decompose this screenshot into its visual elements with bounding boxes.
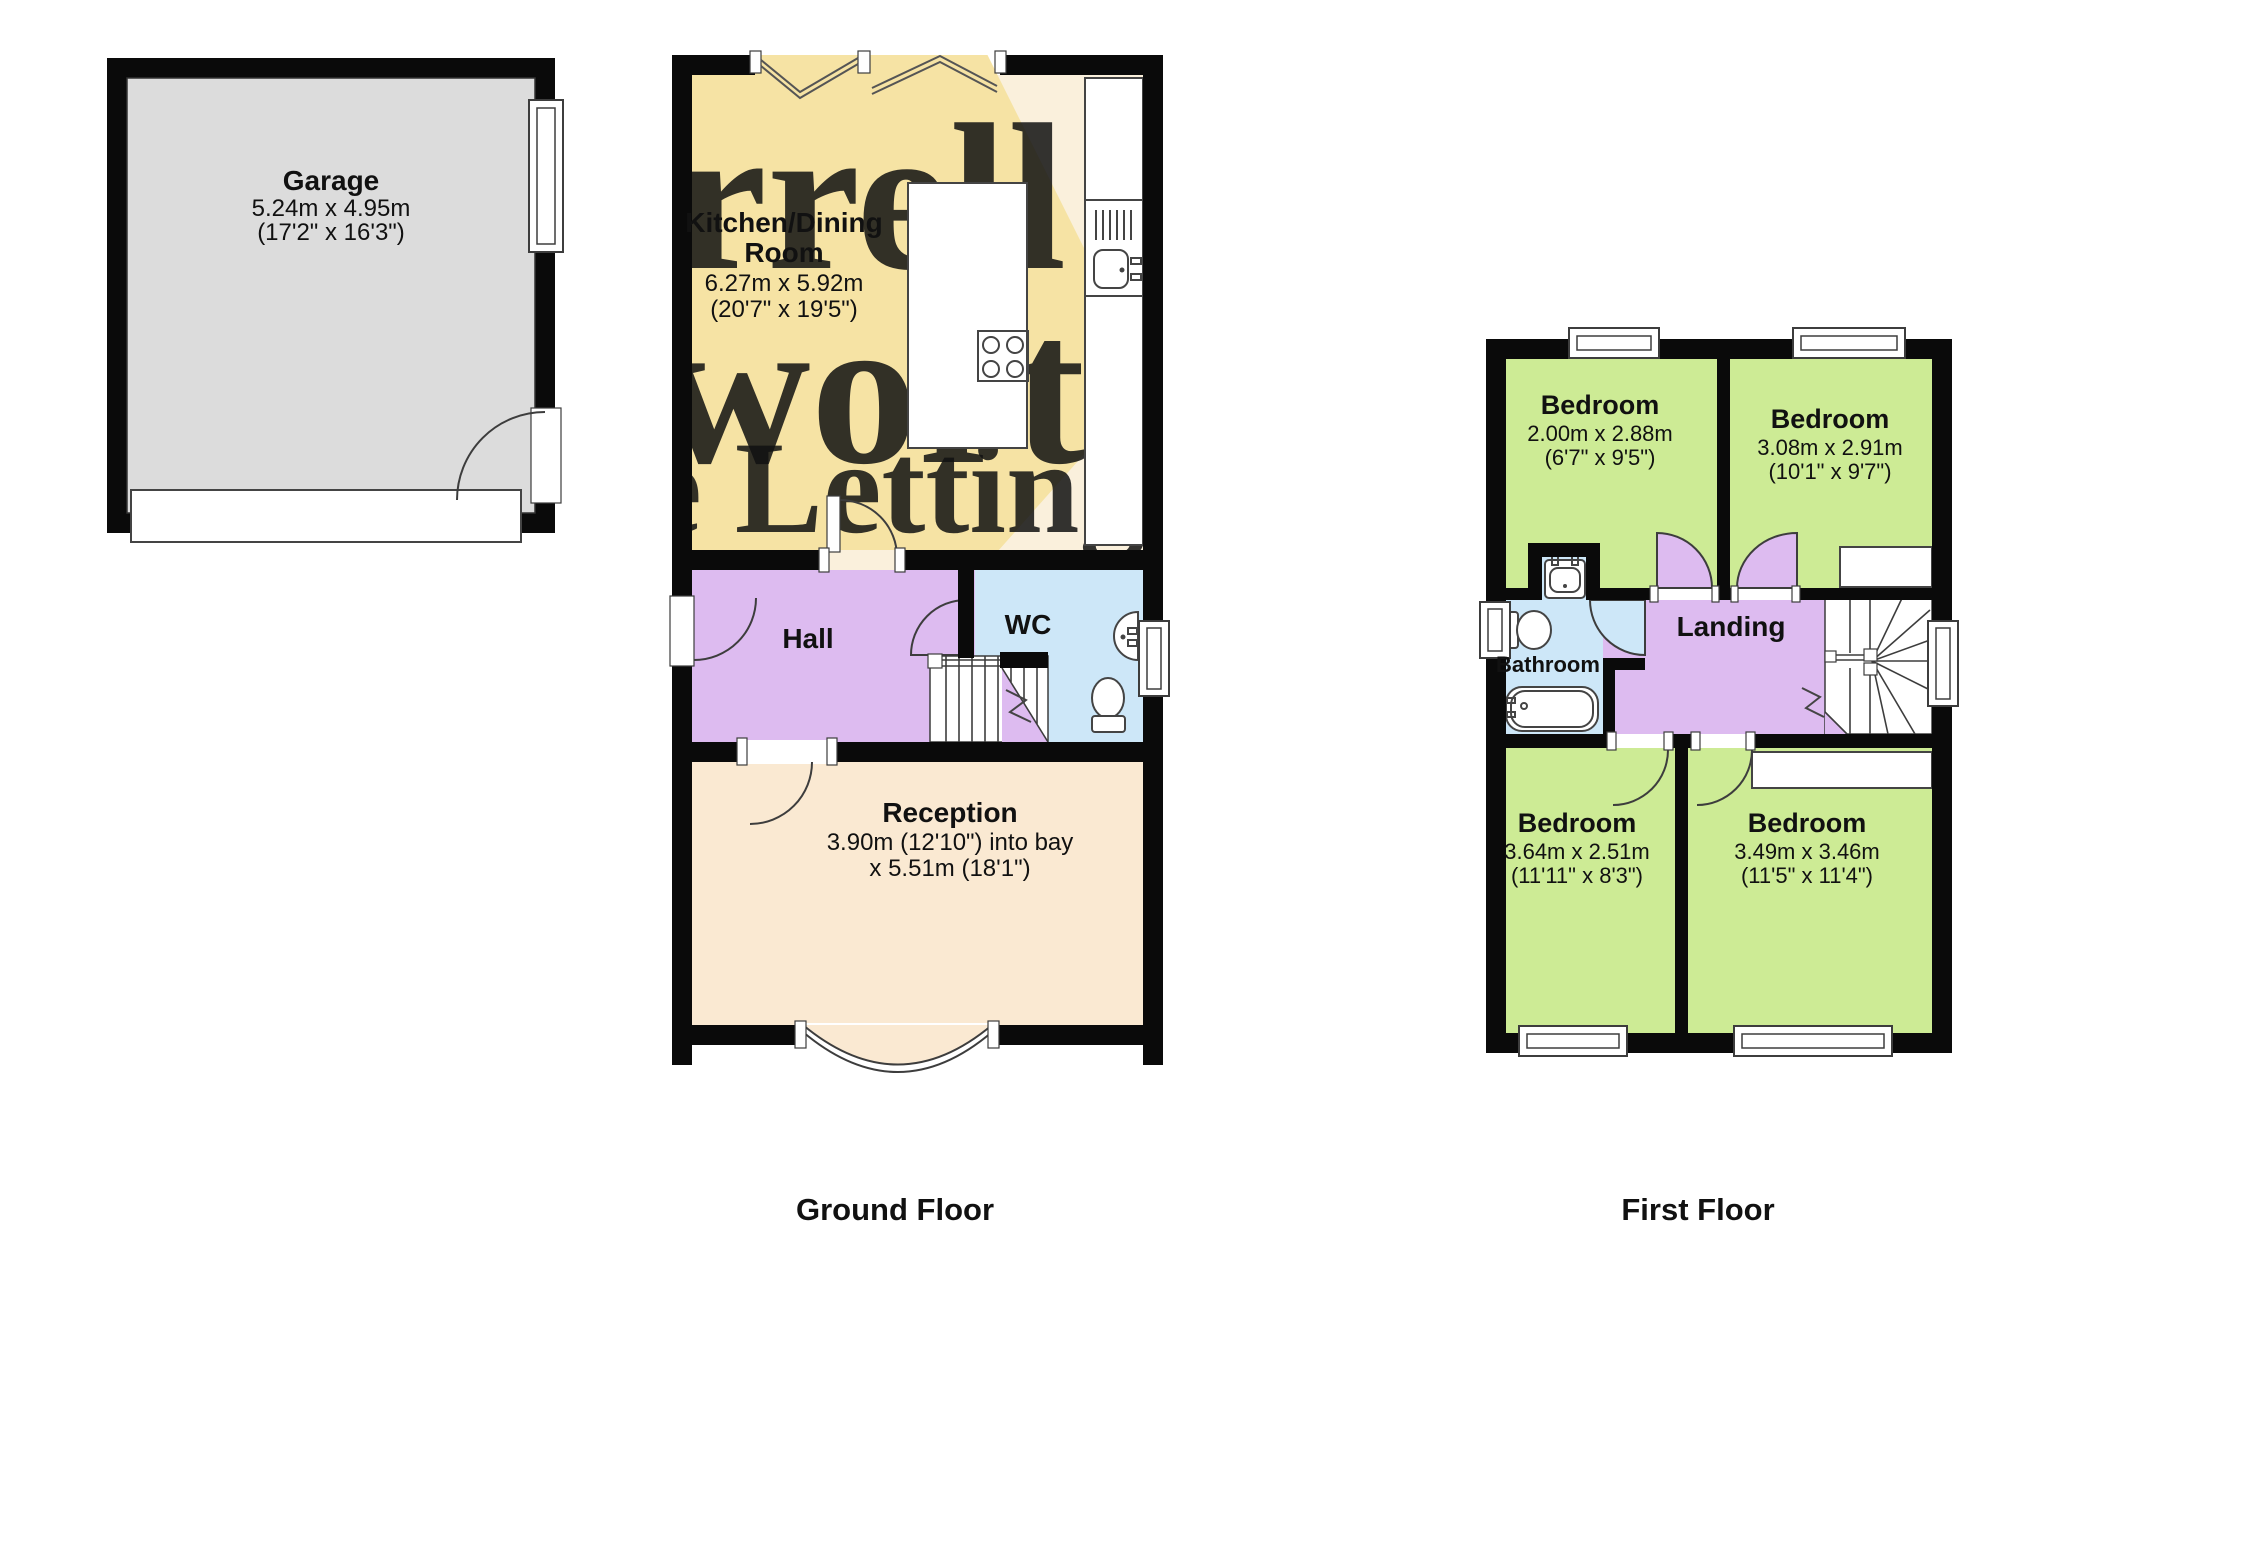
sink-drain	[1120, 268, 1125, 273]
garage-dims-ft: (17'2" x 16'3")	[257, 219, 405, 246]
stairs-first	[1825, 592, 1932, 734]
garage-side-door	[531, 408, 561, 503]
door-jamb	[1731, 586, 1738, 602]
bedroom-tr-dims-ft: (10'1" x 9'7")	[1768, 459, 1891, 484]
garage-dims-m: 5.24m x 4.95m	[252, 195, 411, 222]
newel-post	[1825, 651, 1836, 662]
garage-door-icon	[131, 490, 521, 542]
door-jamb	[988, 1021, 999, 1048]
bedroom-tr-label: Bedroom	[1771, 404, 1890, 434]
wardrobe	[1752, 752, 1932, 788]
bedroom-bottom-left-window-icon	[1519, 1026, 1627, 1056]
bathroom-window-icon	[1480, 602, 1510, 658]
door-jamb	[737, 738, 747, 765]
kitchen-island	[908, 183, 1027, 448]
bathroom-label: Bathroom	[1496, 652, 1600, 677]
reception-dims-2: x 5.51m (18'1")	[869, 855, 1030, 882]
garage-label: Garage	[283, 165, 380, 196]
first-floor-plan: Bedroom 2.00m x 2.88m (6'7" x 9'5") Bedr…	[1480, 328, 1958, 1227]
toilet-cistern-icon	[1092, 716, 1125, 732]
bedroom-bl-dims-ft: (11'11" x 8'3")	[1511, 863, 1643, 888]
bedroom-tl-label: Bedroom	[1541, 390, 1660, 420]
hall-label: Hall	[782, 623, 833, 654]
bedroom-bl-dims-m: 3.64m x 2.51m	[1504, 839, 1650, 864]
kitchen-dims-m: 6.27m x 5.92m	[705, 270, 864, 297]
door-jamb	[1792, 586, 1800, 602]
door-jamb	[827, 738, 837, 765]
bathtub-icon	[1506, 687, 1598, 731]
wc-window-icon	[1139, 621, 1169, 696]
bedroom-br-label: Bedroom	[1748, 808, 1867, 838]
door-jamb	[819, 548, 829, 572]
wardrobe	[1840, 547, 1932, 587]
front-door-leaf	[670, 596, 694, 666]
landing-label: Landing	[1677, 611, 1786, 642]
reception-dims-1: 3.90m (12'10") into bay	[827, 829, 1074, 856]
floorplan-canvas: Garage 5.24m x 4.95m (17'2" x 16'3") rre…	[0, 0, 2256, 1563]
door-jamb	[1691, 732, 1700, 750]
bedroom-tl-dims-ft: (6'7" x 9'5")	[1545, 445, 1656, 470]
newel-post	[1864, 663, 1877, 675]
floorplan-page: Garage 5.24m x 4.95m (17'2" x 16'3") rre…	[0, 0, 2256, 1563]
bedroom-tl-dims-m: 2.00m x 2.88m	[1527, 421, 1673, 446]
first-floor-label: First Floor	[1621, 1192, 1774, 1227]
newel-post	[1864, 649, 1877, 661]
bedroom-bottom-right-room	[1688, 748, 1932, 1033]
basin-drain	[1563, 584, 1567, 588]
door-jamb	[795, 1021, 806, 1048]
bedroom-tr-dims-m: 3.08m x 2.91m	[1757, 435, 1903, 460]
garage-window-icon	[529, 100, 563, 252]
door-jamb	[1650, 586, 1658, 602]
ground-floor-label: Ground Floor	[796, 1192, 994, 1227]
kitchen-dims-ft: (20'7" x 19'5")	[710, 296, 858, 323]
bedroom-top-left-window-icon	[1569, 328, 1659, 358]
kitchen-counter	[1085, 78, 1143, 545]
bedroom-br-dims-ft: (11'5" x 11'4")	[1741, 863, 1873, 888]
bedroom-bl-label: Bedroom	[1518, 808, 1637, 838]
garage-plan: Garage 5.24m x 4.95m (17'2" x 16'3")	[107, 58, 563, 542]
door-jamb	[1664, 732, 1673, 750]
basin-drain	[1121, 635, 1126, 640]
door-jamb	[1746, 732, 1755, 750]
kitchen-door-leaf	[827, 496, 840, 552]
stairs-window-icon	[1928, 621, 1958, 706]
kitchen-label-2: Room	[744, 237, 823, 268]
door-jamb	[895, 548, 905, 572]
wc-label: WC	[1005, 609, 1052, 640]
newel-post	[928, 654, 942, 668]
reception-doorway	[745, 740, 829, 764]
bedroom-br-dims-m: 3.49m x 3.46m	[1734, 839, 1880, 864]
door-jamb	[1712, 586, 1719, 602]
reception-label: Reception	[882, 797, 1017, 828]
kitchen-label-1: Kitchen/Dining	[685, 207, 883, 238]
bedroom-bottom-right-window-icon	[1734, 1026, 1892, 1056]
toilet-bowl-icon	[1517, 611, 1551, 649]
toilet-bowl-icon	[1092, 678, 1124, 718]
bedroom-top-right-window-icon	[1793, 328, 1905, 358]
door-jamb	[1607, 732, 1616, 750]
